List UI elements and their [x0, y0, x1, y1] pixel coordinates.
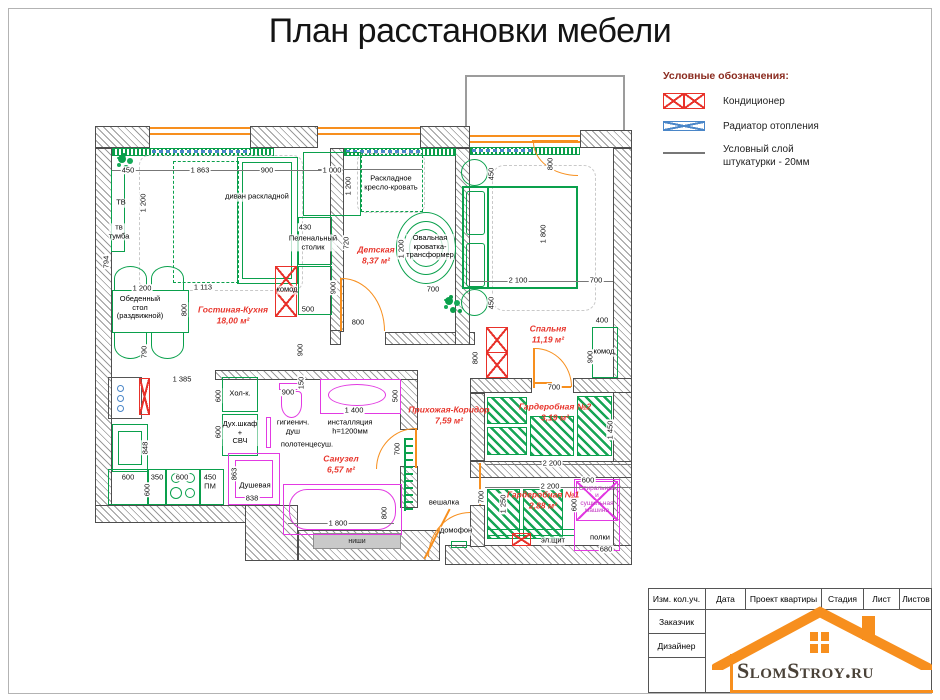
- room-label-wardrobe1: Гардеробная №12,88 м²: [507, 490, 579, 513]
- room-label-childrens: Детская8,37 м²: [357, 245, 394, 268]
- dim-label: 1 200: [139, 193, 147, 214]
- dim-label: 150: [297, 376, 305, 391]
- dim-label: 350: [150, 473, 165, 481]
- dim-label: 600: [581, 476, 596, 484]
- wall-segment: [95, 148, 112, 522]
- dim-label: 1 800: [539, 224, 547, 245]
- wall-segment: [330, 330, 341, 345]
- wall-segment: [250, 126, 318, 148]
- plaster-line-icon: [663, 152, 705, 154]
- legend-item-label: Условный слой штукатурки - 20мм: [723, 144, 810, 169]
- dim-label: 430: [298, 223, 313, 231]
- dim-label: 600: [143, 483, 151, 498]
- dim-label: 700: [547, 383, 562, 391]
- sofa-seat: [242, 162, 292, 279]
- room-label-hallway: Прихожая-Коридор7,59 м²: [408, 405, 489, 428]
- dim-label: 1 385: [172, 375, 193, 383]
- air-conditioner-icon: [486, 352, 508, 378]
- furniture-label: тв тумба: [109, 223, 130, 240]
- air-conditioner-icon: [663, 93, 684, 109]
- dim-label: 450: [121, 166, 136, 174]
- air-conditioner-icon: [684, 93, 705, 109]
- dim-label: ПМ: [203, 482, 217, 490]
- chair: [151, 332, 184, 359]
- dim-label: 680: [599, 545, 614, 553]
- dim-label: 800: [380, 506, 388, 521]
- sofa-bed-unfolded: [173, 161, 239, 283]
- niche-box: ниши: [313, 533, 401, 549]
- furniture-label: вешалка: [429, 499, 459, 508]
- dim-label: 1 250: [499, 494, 507, 515]
- dim-label: 1 200: [132, 284, 153, 292]
- room-label-wardrobe2: Гардеробная №23,19 м²: [519, 402, 591, 425]
- bedside-table: [461, 159, 488, 186]
- kitchen-cabinet-inner: [118, 431, 142, 465]
- dim-label: 700: [589, 276, 604, 284]
- furniture-label: комод: [276, 286, 297, 295]
- wall-segment: [470, 378, 532, 393]
- air-conditioner-icon: [275, 291, 297, 317]
- dim-label: 900: [296, 343, 304, 358]
- washbasin-bowl: [328, 384, 386, 406]
- furniture-label: Пеленальный столик: [289, 234, 337, 251]
- dim-label: 900: [281, 388, 296, 396]
- legend-item-label: Кондиционер: [723, 96, 785, 109]
- furniture-label: Обеденный стол (раздвижной): [117, 295, 164, 321]
- dim-label: 600: [214, 389, 222, 404]
- furniture-label: полки: [590, 534, 610, 543]
- dim-label: 400: [595, 316, 610, 324]
- radiator-icon: [152, 150, 250, 153]
- page-title: План расстановки мебели: [0, 12, 940, 51]
- sink-bowl: [117, 405, 124, 412]
- dim-label: 1 800: [328, 519, 349, 527]
- dim-label: 700: [426, 285, 441, 293]
- dim-label: 800: [471, 351, 479, 366]
- dim-label: 600: [214, 425, 222, 440]
- plant-icon: [445, 297, 453, 305]
- chair: [151, 266, 184, 291]
- drawing-sheet: План расстановки мебели Условные обознач…: [0, 0, 940, 700]
- window: [150, 127, 250, 135]
- dim-label: 1 450: [606, 420, 614, 441]
- dim-label: 1 113: [193, 283, 213, 291]
- kitchen-sink-unit: [108, 377, 142, 419]
- furniture-label: Хол-к.: [229, 390, 250, 399]
- towel-dryer: [266, 417, 271, 448]
- dim-label: 500: [391, 389, 399, 404]
- dim-label: 863: [230, 467, 238, 482]
- wall-segment: [420, 126, 470, 148]
- dim-label: 794: [102, 255, 110, 270]
- dim-label: 1 000: [322, 166, 343, 174]
- wall-segment: [573, 378, 632, 393]
- dim-label: 450: [203, 473, 218, 481]
- dim-label: 900: [260, 166, 275, 174]
- dim-label: 450: [487, 296, 495, 311]
- furniture-label: диван раскладной: [225, 193, 289, 202]
- legend-heading: Условные обозначения:: [663, 70, 789, 82]
- wall-segment: [95, 126, 150, 148]
- clothes-rack: [487, 427, 527, 455]
- radiator-icon: [139, 378, 150, 415]
- radiator-icon: [472, 149, 532, 152]
- furniture-label: комод: [593, 348, 614, 357]
- titleblock-col: Изм. кол.уч.: [648, 588, 706, 610]
- furniture-label: Дух.шкаф + СВЧ: [223, 420, 258, 446]
- plant-icon: [118, 155, 126, 163]
- dim-label: 800: [180, 303, 188, 318]
- sink-bowl: [117, 395, 124, 402]
- furniture-label: Раскладное кресло-кровать: [364, 174, 417, 191]
- wall-segment: [95, 505, 247, 523]
- radiator-icon: [663, 121, 705, 131]
- furniture-label: Овальная кроватка- трансформер: [406, 234, 454, 260]
- wall-segment: [470, 505, 485, 547]
- electrical-panel: [512, 533, 531, 546]
- dim-label: 720: [342, 236, 350, 251]
- wall-segment: [580, 130, 632, 148]
- dim-label: 838: [245, 494, 260, 502]
- pillow: [466, 191, 485, 235]
- window: [318, 127, 420, 135]
- dim-line: [112, 170, 343, 171]
- furniture-label: полотенцесуш.: [281, 441, 333, 450]
- dim-label: 900: [329, 281, 337, 296]
- headboard-line: [487, 188, 489, 287]
- furniture-label: домофон: [440, 527, 472, 536]
- furniture-label: гигиенич. душ: [277, 418, 309, 435]
- burner: [185, 488, 195, 498]
- logo-text: SlomStroy.ru: [737, 658, 874, 684]
- armchair-bed: [303, 152, 361, 216]
- furniture-label: ТВ: [116, 199, 126, 208]
- dim-label: 848: [141, 441, 149, 456]
- air-conditioner-icon: [486, 327, 508, 353]
- titleblock-row-empty: [648, 658, 706, 693]
- furniture-label: Душевая: [239, 482, 270, 491]
- coat-rack: [404, 438, 413, 511]
- dim-label: 790: [140, 345, 148, 360]
- bedside-table: [461, 289, 488, 316]
- dim-label: 600: [121, 473, 136, 481]
- dim-label: 700: [393, 442, 401, 457]
- dim-label: 1 400: [344, 406, 365, 414]
- dim-label: 600: [175, 473, 190, 481]
- room-label-living-kitchen: Гостиная-Кухня18,00 м²: [198, 305, 268, 328]
- room-label-bedroom: Спальня11,19 м²: [530, 324, 567, 347]
- dim-label: 800: [351, 318, 366, 326]
- dim-label: 2 200: [542, 459, 563, 467]
- furniture-label: эл.щит: [541, 537, 565, 546]
- dim-label: 450: [487, 167, 495, 182]
- dim-label: 2 100: [508, 276, 529, 284]
- dim-label: 800: [546, 157, 554, 172]
- dim-label: 700: [477, 490, 485, 505]
- dim-label: 500: [301, 305, 316, 313]
- furniture-label: инсталляция h=1200мм: [328, 418, 373, 435]
- dim-label: 1 200: [397, 239, 405, 260]
- room-label-bathroom: Санузел6,57 м²: [323, 454, 358, 477]
- legend-item-label: Радиатор отопления: [723, 121, 819, 134]
- titleblock-row: Заказчик: [648, 610, 706, 634]
- burner: [170, 487, 182, 499]
- titleblock-row: Дизайнер: [648, 634, 706, 658]
- furniture-label: Стиральная и сушильная машина: [579, 485, 615, 515]
- sink-bowl: [117, 385, 124, 392]
- dim-label: 1 200: [344, 176, 352, 197]
- dim-label: 1 863: [190, 166, 211, 174]
